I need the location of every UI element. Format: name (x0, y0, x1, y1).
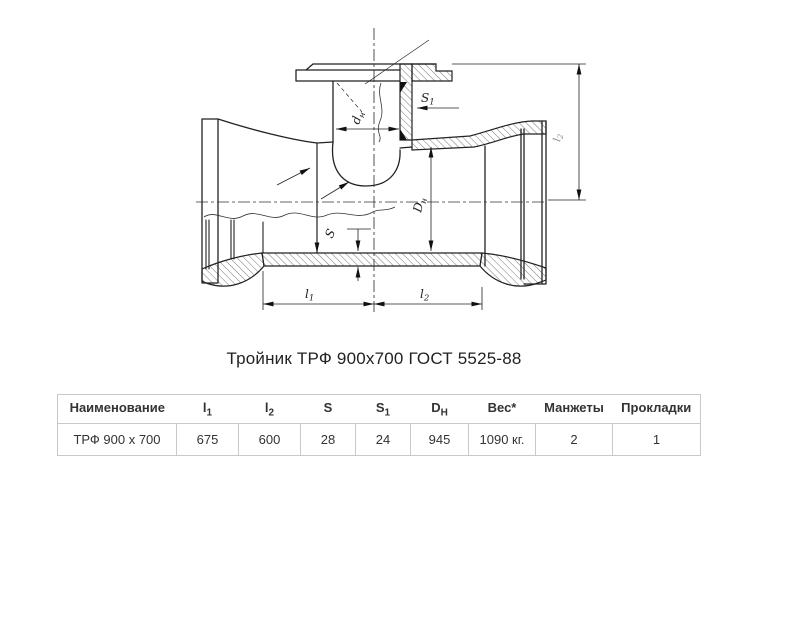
label-l2: l2 (420, 287, 429, 304)
col-s1: S1 (356, 395, 411, 424)
col-weight: Вес* (469, 395, 536, 424)
catalog-page: S1 dн Dн S l1 l2 l2 Тройник ТРФ 900х700 … (0, 0, 800, 623)
cell-l2: 600 (239, 424, 301, 456)
col-cuffs: Манжеты (536, 395, 613, 424)
cell-s1: 24 (356, 424, 411, 456)
cell-s: 28 (301, 424, 356, 456)
label-l1: l1 (305, 287, 314, 304)
cell-cuffs: 2 (536, 424, 613, 456)
cell-gaskets: 1 (613, 424, 701, 456)
col-dn: DН (411, 395, 469, 424)
break-lines (204, 83, 395, 218)
cell-weight: 1090 кг. (469, 424, 536, 456)
label-s1: S1 (421, 91, 435, 108)
label-branch-height: l2 (552, 133, 565, 143)
cell-l1: 675 (177, 424, 239, 456)
col-l1: l1 (177, 395, 239, 424)
col-l2: l2 (239, 395, 301, 424)
col-s: S (301, 395, 356, 424)
label-DN: Dн (410, 196, 430, 216)
label-dn: dн (349, 109, 369, 127)
tee-fitting-technical-drawing: S1 dн Dн S l1 l2 l2 (0, 0, 800, 345)
drawing-title: Тройник ТРФ 900х700 ГОСТ 5525-88 (0, 349, 748, 369)
col-name: Наименование (58, 395, 177, 424)
cell-name: ТРФ 900 х 700 (58, 424, 177, 456)
dimensions-table: Наименование l1 l2 S S1 DН Вес* Манжеты … (57, 394, 701, 456)
cell-dn: 945 (411, 424, 469, 456)
label-s: S (322, 227, 338, 241)
table-row: ТРФ 900 х 700 675 600 28 24 945 1090 кг.… (58, 424, 701, 456)
table-header-row: Наименование l1 l2 S S1 DН Вес* Манжеты … (58, 395, 701, 424)
col-gaskets: Прокладки (613, 395, 701, 424)
